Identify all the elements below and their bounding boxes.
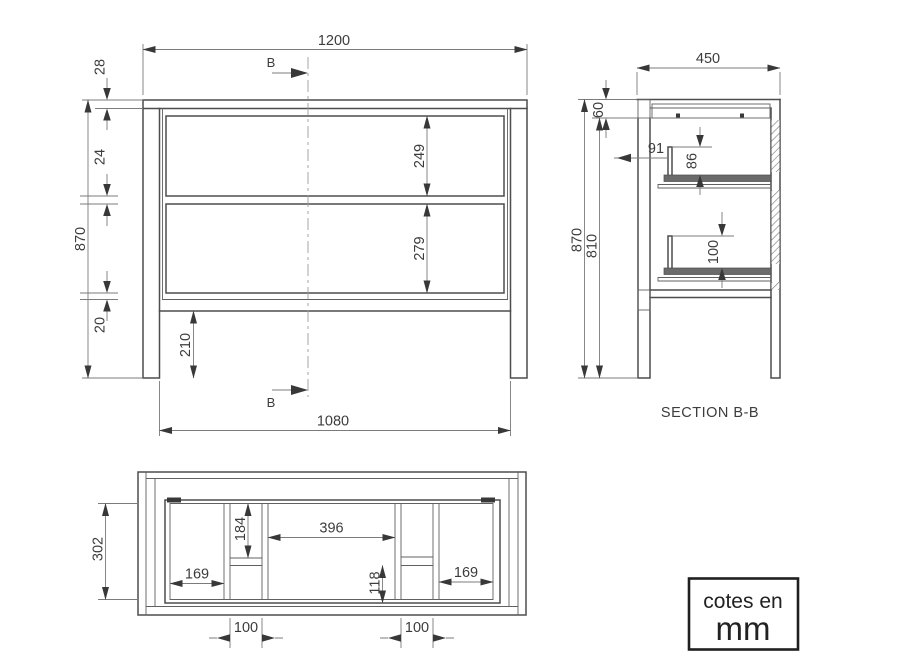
dim-label: 279: [412, 236, 428, 260]
dim-label: 184: [233, 517, 249, 541]
dim-label: 20: [93, 317, 109, 333]
wall-hatch: [772, 120, 780, 172]
dim-label: 169: [185, 567, 209, 583]
section-marker-label: B: [267, 55, 276, 70]
dim-label: 169: [454, 565, 478, 581]
dim-front-drawer2-height: 279: [412, 204, 428, 293]
dim-label: 60: [591, 102, 607, 118]
dim-label: 1080: [317, 414, 349, 430]
drawer2-front: [166, 204, 504, 293]
body-inner-walls: [170, 504, 493, 600]
dim-label: 870: [570, 228, 586, 252]
section-marker-label: B: [267, 395, 276, 410]
dim-plan-body-depth: 302: [91, 504, 139, 600]
left-leg: [143, 109, 160, 379]
dim-front-height-total: 870: [73, 100, 143, 378]
lower-drawer-side: [668, 236, 672, 268]
dim-front-width-bottom: 1080: [160, 381, 511, 436]
section-arrow-icon: [291, 68, 308, 78]
dim-section-drawer-setback: 91: [614, 141, 668, 162]
section-marker-top: B: [267, 55, 308, 78]
dim-label: 100: [234, 620, 258, 636]
cabinet-technical-drawing: B B 1200 870 28 24: [0, 0, 900, 657]
lower-slide-bar: [664, 268, 771, 275]
dim-plan-right-compartment: 169: [439, 565, 493, 582]
front-rail-cut: [638, 100, 650, 119]
screw-icon: [740, 114, 744, 118]
technical-drawing-page: B B 1200 870 28 24: [0, 0, 900, 657]
dim-plan-right-channel: 100: [380, 618, 454, 648]
dim-plan-center-width: 396: [268, 521, 395, 538]
units-note-box: cotes en mm: [689, 579, 798, 650]
plan-view-outline: [138, 472, 526, 615]
units-note-line2: mm: [716, 610, 771, 647]
front-leg: [638, 118, 650, 378]
divider-walls: [224, 504, 439, 600]
dim-plan-left-channel: 100: [209, 618, 283, 648]
dim-label: 210: [178, 333, 194, 357]
dim-label: 86: [685, 153, 701, 169]
dim-front-drawer1-height: 249: [412, 116, 428, 196]
section-arrow-icon: [291, 385, 308, 395]
section-title: SECTION B-B: [661, 405, 759, 421]
dim-label: 810: [585, 234, 601, 258]
dim-front-width-top: 1200: [143, 33, 527, 95]
dim-plan-front-offset: 118: [368, 566, 384, 604]
slide-bracket: [167, 498, 181, 503]
dim-label: 24: [93, 149, 109, 165]
upper-slide-bar: [664, 175, 771, 182]
dim-label: 302: [91, 537, 107, 561]
dim-section-lower-slide: 100: [672, 212, 734, 288]
screw-icon: [676, 114, 680, 118]
dim-plan-left-compartment: 169: [170, 567, 224, 584]
dim-section-top-assembly: 60: [591, 80, 652, 138]
dim-label: 450: [696, 51, 720, 67]
wall-hatch: [772, 282, 780, 290]
front-view-outline: [143, 57, 527, 397]
dim-plan-back-offset: 184: [233, 504, 249, 559]
lower-slide-rail: [658, 278, 771, 282]
dim-label: 249: [412, 144, 428, 168]
bottom-shelf: [650, 290, 771, 298]
dim-label: 100: [706, 240, 722, 264]
dim-label: 100: [405, 620, 429, 636]
divider-cross-rails: [230, 557, 433, 566]
body-plan: [165, 500, 500, 603]
upper-drawer-side: [668, 147, 672, 175]
dim-front-bottom-rail: 20: [80, 271, 118, 333]
dim-front-leg-clearance: 210: [178, 311, 194, 378]
drawer1-front: [166, 116, 504, 196]
dim-section-depth: 450: [637, 51, 780, 95]
top-rail: [652, 104, 770, 118]
wall-hatch: [772, 190, 780, 264]
front-view: B B 1200 870 28 24: [73, 33, 527, 436]
slide-bracket: [481, 498, 495, 503]
dim-label: 870: [73, 227, 89, 251]
dim-section-height-under-top: 810: [585, 118, 601, 378]
dim-label: 396: [319, 521, 343, 537]
plan-view: 302 184 396 118 169 169 100: [91, 472, 527, 648]
upper-slide-rail: [658, 185, 771, 189]
section-marker-bottom: B: [267, 385, 308, 410]
top-panel: [143, 100, 527, 109]
dim-label: 28: [93, 59, 109, 75]
dim-front-top-thickness: 28: [93, 59, 144, 130]
top-panel-plan: [138, 472, 526, 615]
dim-label: 91: [648, 141, 664, 157]
stretcher-cut: [638, 290, 650, 310]
dim-front-drawer-gap: 24: [80, 149, 118, 226]
right-leg: [511, 109, 528, 379]
dim-section-height-total: 870: [570, 100, 639, 379]
panel-edge-bands: [146, 472, 518, 615]
section-view: 450 60 870 810 91 86: [570, 51, 781, 421]
dim-label: 118: [368, 571, 384, 594]
dim-label: 1200: [318, 33, 350, 49]
